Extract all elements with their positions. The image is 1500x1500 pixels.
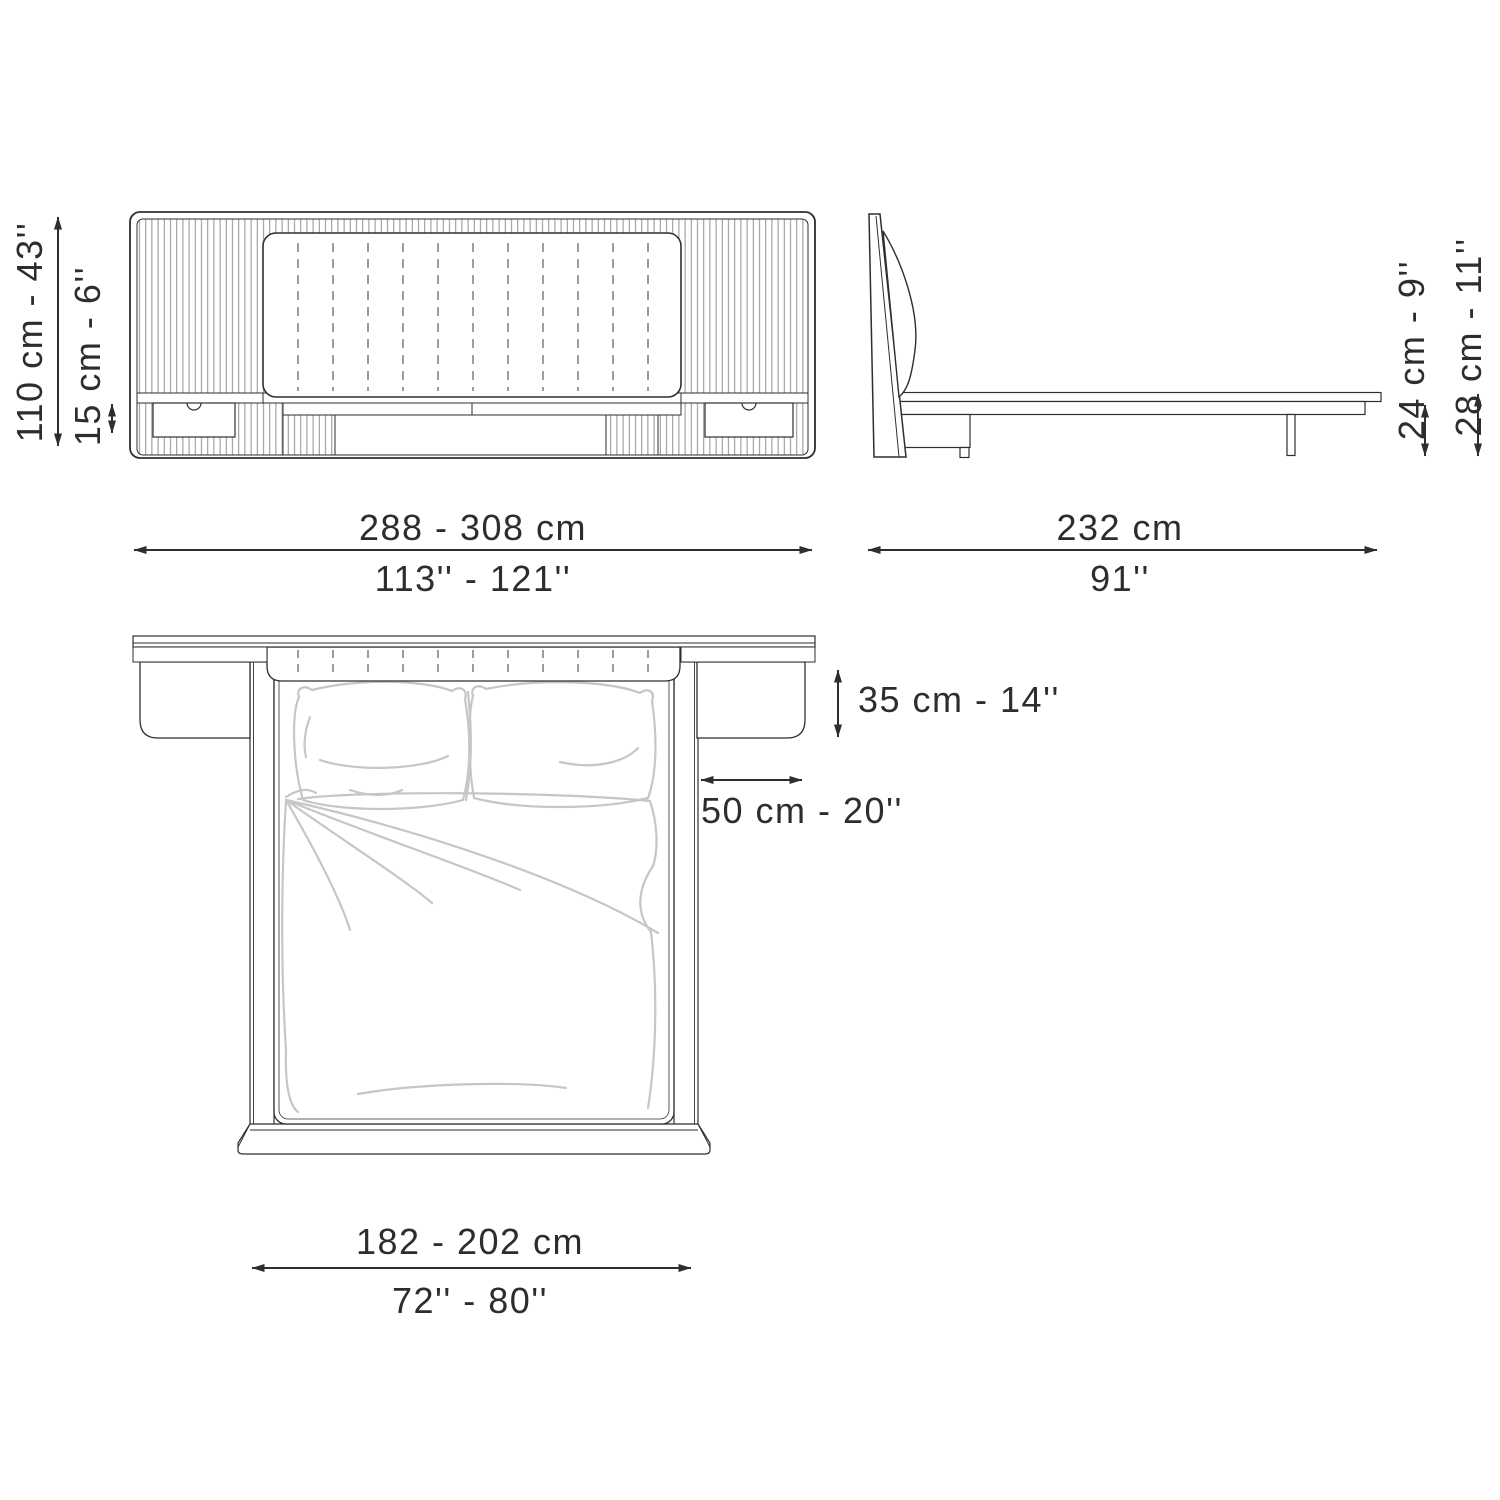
platform-top-slab	[881, 393, 1381, 402]
left-side-shelf	[140, 662, 250, 738]
headboard-cushion	[263, 233, 681, 397]
front-view	[130, 212, 815, 458]
shelf-depth-label: 35 cm - 14''	[858, 679, 1060, 720]
top-shelf-width-dimension: 50 cm - 20''	[701, 780, 903, 831]
platform-lower-frame	[890, 402, 1365, 415]
front-width-dimension: 288 - 308 cm 113'' - 121''	[134, 507, 812, 599]
wall-strip-left-wing	[133, 647, 267, 662]
top-width-dimension: 182 - 202 cm 72'' - 80''	[252, 1221, 691, 1321]
front-shelf-label: 15 cm - 6''	[67, 266, 108, 446]
wall-strip-right-wing	[681, 647, 815, 662]
bed-dimension-diagram: 110 cm - 43'' 15 cm - 6'' 288 - 308 cm 1…	[0, 0, 1500, 1500]
bed-leg	[1287, 415, 1295, 456]
top-view	[133, 636, 815, 1154]
right-nightstand-drawer	[705, 403, 793, 437]
diagram-canvas: 110 cm - 43'' 15 cm - 6'' 288 - 308 cm 1…	[0, 0, 1500, 1500]
bed-base-rail	[283, 403, 681, 415]
frame-height-label: 28 cm - 11''	[1448, 237, 1489, 436]
front-width-cm-label: 288 - 308 cm	[359, 507, 587, 548]
side-view	[869, 214, 1381, 458]
front-width-in-label: 113'' - 121''	[375, 558, 571, 599]
side-depth-dimension: 232 cm 91''	[868, 507, 1377, 599]
front-shelf-dimension: 15 cm - 6''	[67, 266, 112, 446]
side-depth-cm-label: 232 cm	[1056, 507, 1183, 548]
top-width-in-label: 72'' - 80''	[392, 1280, 548, 1321]
left-nightstand-drawer	[153, 403, 235, 437]
mattress	[274, 662, 674, 1124]
front-height-label: 110 cm - 43''	[9, 222, 50, 443]
shelf-width-label: 50 cm - 20''	[701, 790, 903, 831]
top-shelf-depth-dimension: 35 cm - 14''	[838, 670, 1060, 737]
side-frame-height-dimension: 28 cm - 11''	[1448, 237, 1489, 456]
side-platform-height-dimension: 24 cm - 9''	[1391, 260, 1432, 456]
frame-foot-band	[238, 1124, 710, 1154]
under-bed-clearance	[335, 415, 606, 455]
front-height-dimension: 110 cm - 43''	[9, 217, 58, 446]
top-width-cm-label: 182 - 202 cm	[356, 1221, 584, 1262]
nightstand-leg	[960, 448, 969, 458]
headboard-wall-strip	[133, 636, 815, 647]
side-depth-in-label: 91''	[1090, 558, 1150, 599]
right-side-shelf	[697, 662, 805, 738]
side-nightstand-box	[897, 415, 970, 448]
